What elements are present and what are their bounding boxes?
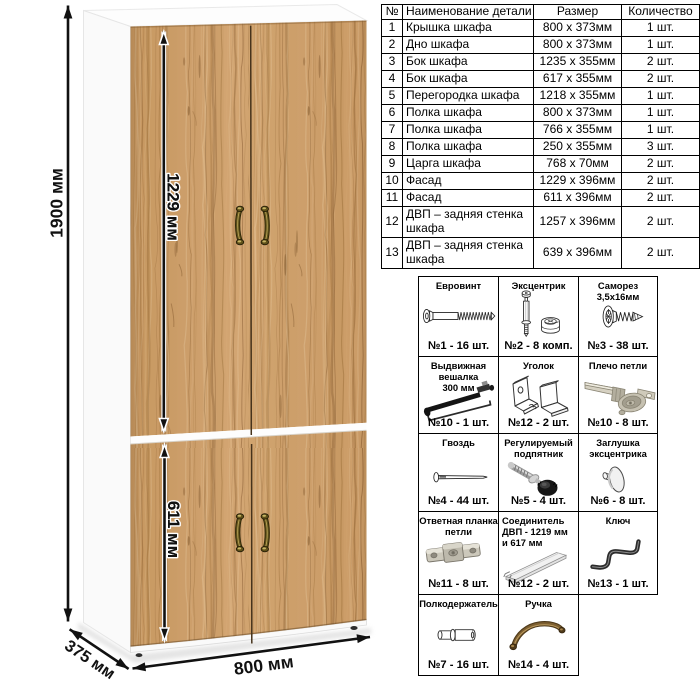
svg-text:611 мм: 611 мм xyxy=(164,501,183,558)
svg-text:1900 мм: 1900 мм xyxy=(46,168,66,238)
svg-text:1229 мм: 1229 мм xyxy=(163,173,182,241)
svg-text:800 мм: 800 мм xyxy=(233,651,295,679)
